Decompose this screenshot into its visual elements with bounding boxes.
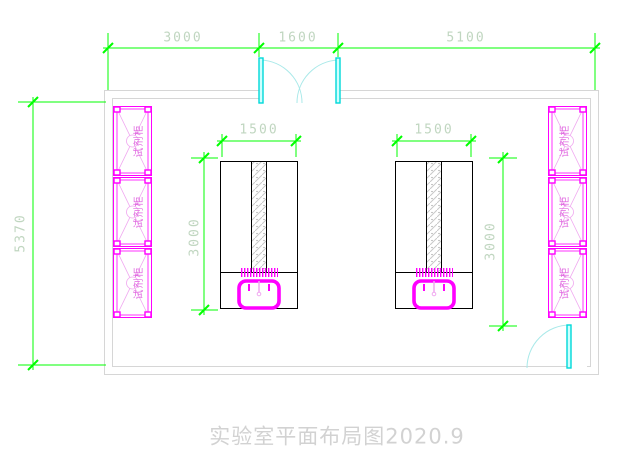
cabinet-label: 试剂柜 [135, 196, 145, 229]
right-single-door [527, 325, 571, 368]
floor-plan: 3000 1600 5100 5370 1500 3000 1500 3000 … [0, 0, 619, 469]
cabinet-label: 试剂柜 [561, 196, 571, 229]
dimension-label-bench1-depth: 3000 [189, 217, 202, 256]
dimension-label-bench1-width: 1500 [239, 124, 278, 137]
lab-bench-left [221, 162, 298, 309]
right-door-opening [571, 324, 587, 369]
drawing-title: 实验室平面布局图2020.9 [209, 427, 464, 448]
cabinet-label: 试剂柜 [561, 267, 571, 300]
dimension-label-bench2-width: 1500 [414, 124, 453, 137]
door-leaf [336, 58, 340, 103]
floor-plan-drawing [0, 0, 619, 469]
door-leaf [567, 325, 571, 368]
dimension-label-5100-top: 5100 [446, 32, 485, 45]
dimension-label-5370-left: 5370 [15, 213, 28, 252]
room-walls [105, 91, 599, 375]
cabinet-label: 试剂柜 [561, 125, 571, 158]
reagent-cabinet [114, 107, 152, 176]
dimension-label-bench2-depth: 3000 [485, 221, 498, 260]
dimension-label-1600-top: 1600 [278, 32, 317, 45]
lab-bench-right [396, 162, 473, 309]
door-leaf [259, 58, 263, 103]
dimension-lines [18, 33, 600, 370]
reagent-cabinet [114, 178, 152, 247]
left-cabinet-column [114, 107, 152, 318]
cabinet-label: 试剂柜 [135, 267, 145, 300]
cabinet-label: 试剂柜 [135, 125, 145, 158]
dimension-label-3000-top: 3000 [163, 32, 202, 45]
door-swing-arc [527, 325, 570, 368]
reagent-cabinet [114, 249, 152, 318]
